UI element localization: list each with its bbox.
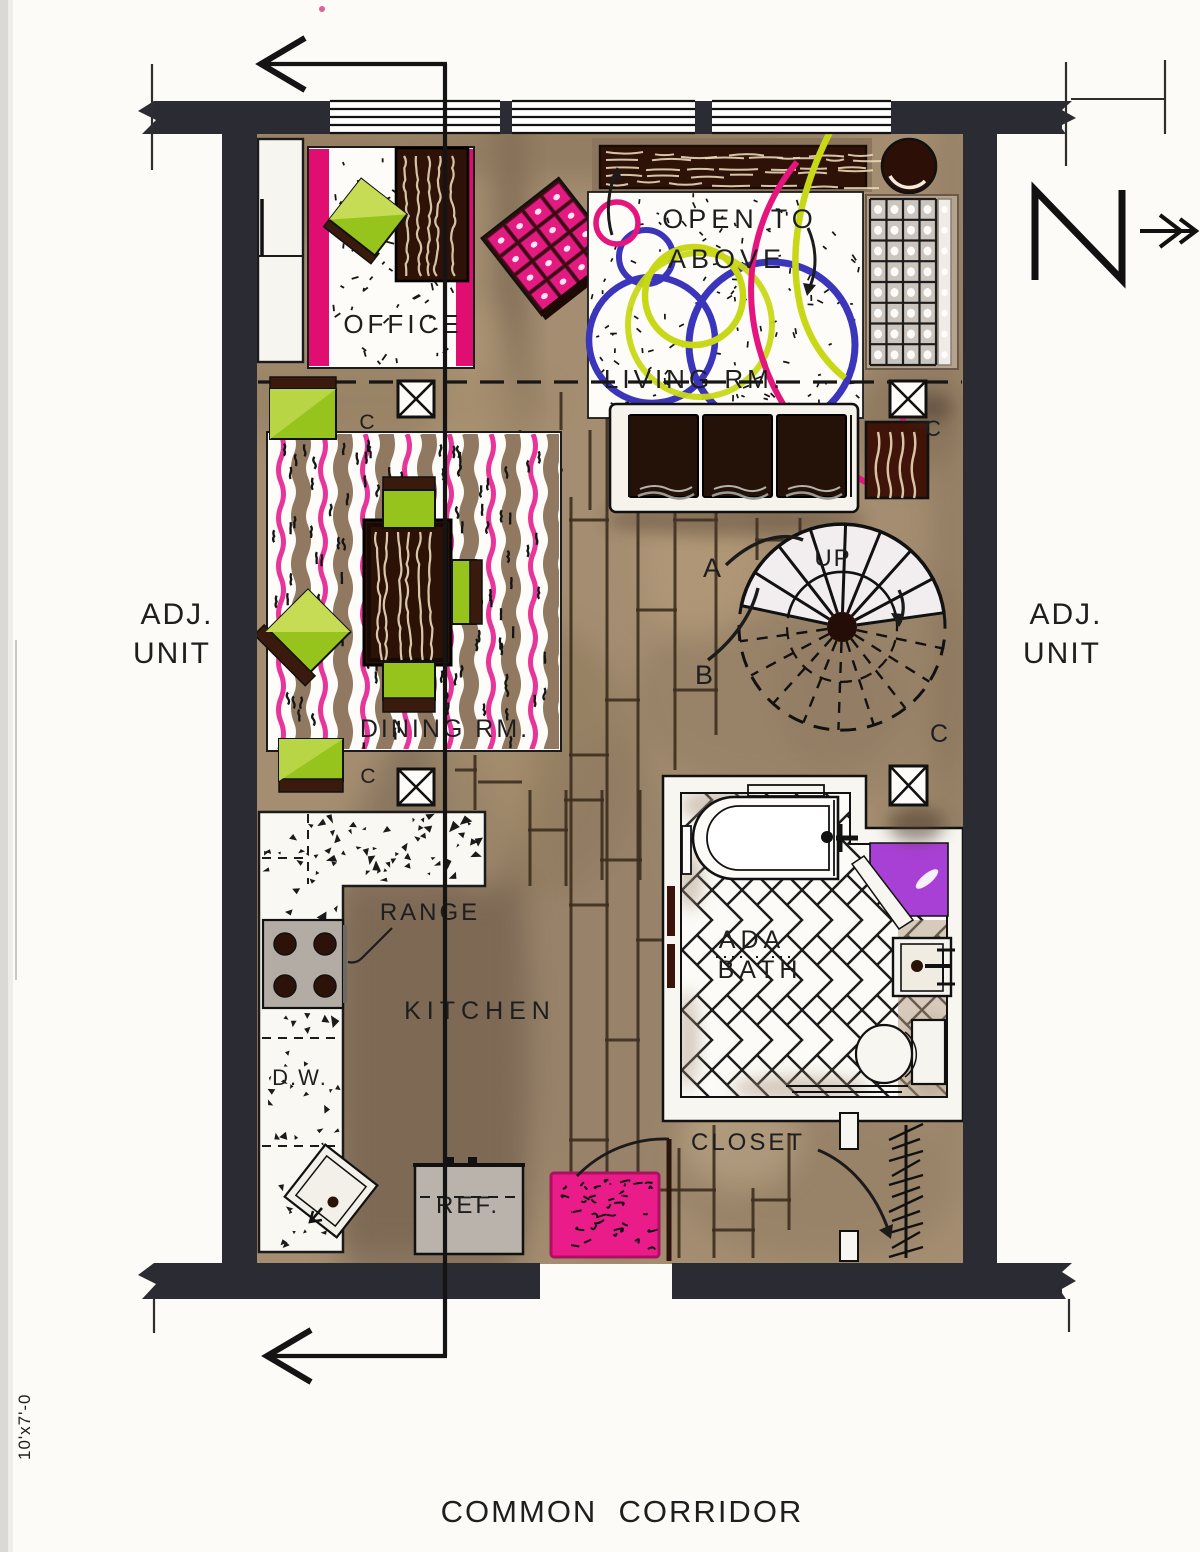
svg-text:B: B: [695, 660, 713, 690]
svg-text:BATH: BATH: [718, 956, 803, 984]
svg-text:C: C: [359, 411, 374, 434]
svg-text:D.W.: D.W.: [272, 1065, 328, 1090]
svg-text:OPEN TO: OPEN TO: [662, 204, 818, 234]
svg-text:C: C: [360, 765, 375, 788]
svg-text:KITCHEN: KITCHEN: [404, 997, 556, 1025]
svg-text:ADJ.: ADJ.: [1029, 598, 1102, 631]
svg-text:LIVING RM.: LIVING RM.: [604, 364, 784, 394]
svg-text:UNIT: UNIT: [133, 637, 211, 670]
svg-text:CLOSET: CLOSET: [691, 1129, 805, 1156]
svg-text:ABOVE: ABOVE: [668, 244, 786, 274]
svg-text:A: A: [703, 553, 721, 583]
svg-text:ADA: ADA: [719, 926, 785, 954]
svg-text:C: C: [925, 416, 941, 441]
svg-text:UNIT: UNIT: [1023, 637, 1101, 670]
svg-text:UP: UP: [814, 545, 851, 572]
svg-text:10'x7'-0: 10'x7'-0: [15, 1394, 34, 1460]
svg-text:C: C: [930, 720, 948, 748]
svg-text:COMMON CORRIDOR: COMMON CORRIDOR: [441, 1494, 804, 1529]
svg-text:ADJ.: ADJ.: [140, 598, 213, 631]
svg-text:RANGE: RANGE: [380, 899, 480, 926]
